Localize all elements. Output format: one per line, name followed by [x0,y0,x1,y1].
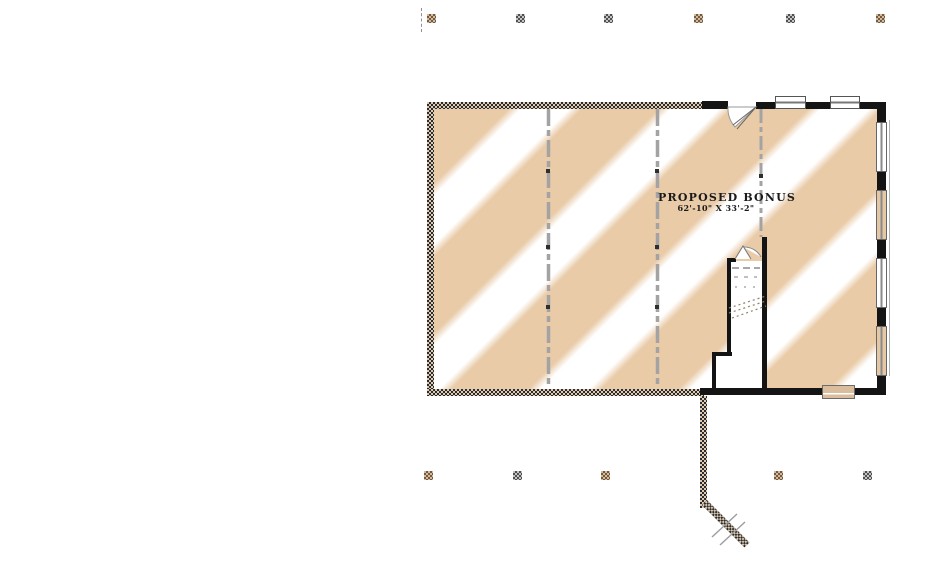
dashed-tick-mark [421,8,422,32]
window-right-2 [876,190,887,240]
grid-mark [516,14,525,23]
hatched-leader-diagonal [702,500,749,547]
grid-mark [694,14,703,23]
grid-mark [863,471,872,480]
window-trim-line [889,120,890,376]
window-top-2 [830,96,860,109]
grid-mark [513,471,522,480]
wall-segment [877,238,886,258]
grid-mark [604,14,613,23]
window-top-1 [775,96,806,109]
hatched-leader-line [700,396,707,508]
stair-wall-right [762,237,767,393]
window-bottom [822,385,855,399]
room-dimensions: 62'-10" X 33'-2" [658,203,774,213]
window-right-3 [876,258,887,308]
grid-mark [427,14,436,23]
wall-segment [756,102,776,109]
stair-wall-jog-lower [712,352,716,392]
window-right-1 [876,122,887,172]
wall-segment [702,101,728,109]
grid-mark [786,14,795,23]
wall-segment [877,306,886,326]
wall-segment [852,388,886,395]
floor-plan-sheet: PROPOSED BONUS 62'-10" X 33'-2" [0,0,950,561]
bonus-room-stripe-fill [433,108,878,389]
grid-mark [774,471,783,480]
stair-shaft-lower [716,355,732,389]
hatched-wall-bottom [427,389,704,396]
stair-shaft [731,261,762,389]
grid-mark [601,471,610,480]
hatched-wall-left [427,102,434,396]
grid-mark [424,471,433,480]
window-right-4 [876,326,887,376]
grid-mark [876,14,885,23]
wall-segment [877,102,886,122]
wall-segment [877,170,886,190]
stair-wall-left [727,259,731,356]
wall-segment [803,102,831,109]
hatched-wall-top [427,102,707,109]
